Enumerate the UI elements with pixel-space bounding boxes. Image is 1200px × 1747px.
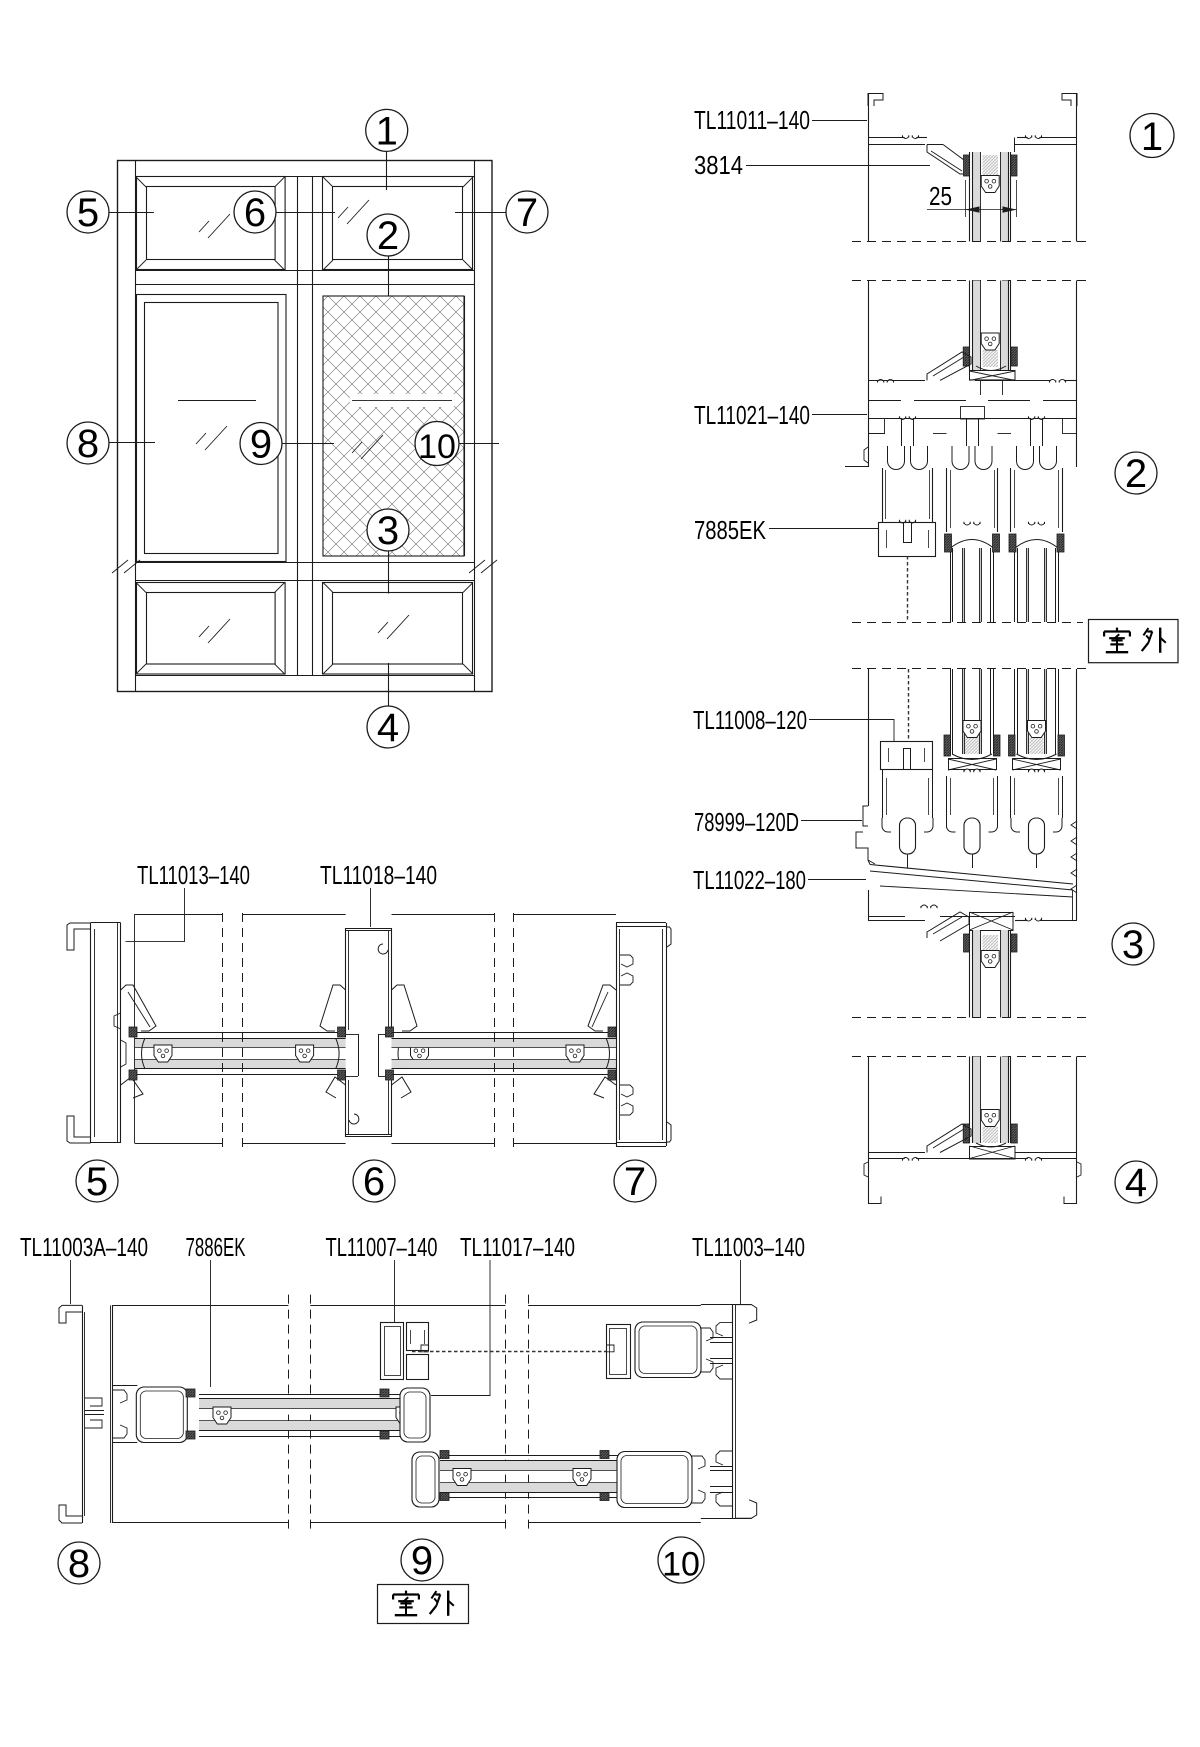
svg-text:1: 1 <box>376 109 398 153</box>
svg-text:TL11011–140: TL11011–140 <box>694 105 810 135</box>
svg-text:2: 2 <box>377 214 399 258</box>
svg-text:TL11007–140: TL11007–140 <box>326 1232 438 1262</box>
svg-text:4: 4 <box>377 706 399 750</box>
svg-text:TL11003–140: TL11003–140 <box>692 1232 805 1262</box>
svg-text:TL11017–140: TL11017–140 <box>460 1232 575 1262</box>
svg-text:6: 6 <box>244 191 266 235</box>
svg-text:3814: 3814 <box>694 150 743 180</box>
svg-text:TL11008–120: TL11008–120 <box>693 705 807 735</box>
svg-text:10: 10 <box>418 428 456 466</box>
svg-text:4: 4 <box>1125 1161 1147 1205</box>
svg-text:8: 8 <box>68 1542 90 1586</box>
svg-text:6: 6 <box>363 1160 385 1204</box>
svg-text:8: 8 <box>77 422 99 466</box>
svg-text:5: 5 <box>86 1160 108 1204</box>
svg-text:3: 3 <box>1122 923 1144 967</box>
svg-text:7: 7 <box>516 191 538 235</box>
svg-text:9: 9 <box>250 423 272 467</box>
svg-text:TL11013–140: TL11013–140 <box>137 860 250 890</box>
svg-text:9: 9 <box>411 1539 433 1583</box>
svg-text:7885EK: 7885EK <box>694 515 767 545</box>
svg-text:TL11003A–140: TL11003A–140 <box>20 1232 148 1262</box>
svg-text:TL11022–180: TL11022–180 <box>693 865 806 895</box>
svg-text:1: 1 <box>1141 115 1163 159</box>
svg-text:7: 7 <box>624 1160 646 1204</box>
svg-text:25: 25 <box>929 181 952 211</box>
svg-text:3: 3 <box>377 509 399 553</box>
svg-text:7886EK: 7886EK <box>186 1232 246 1262</box>
svg-text:10: 10 <box>662 1545 700 1583</box>
svg-text:2: 2 <box>1125 452 1147 496</box>
svg-text:5: 5 <box>77 191 99 235</box>
svg-text:TL11018–140: TL11018–140 <box>320 860 437 890</box>
svg-text:78999–120D: 78999–120D <box>694 807 799 837</box>
svg-text:TL11021–140: TL11021–140 <box>694 400 810 430</box>
